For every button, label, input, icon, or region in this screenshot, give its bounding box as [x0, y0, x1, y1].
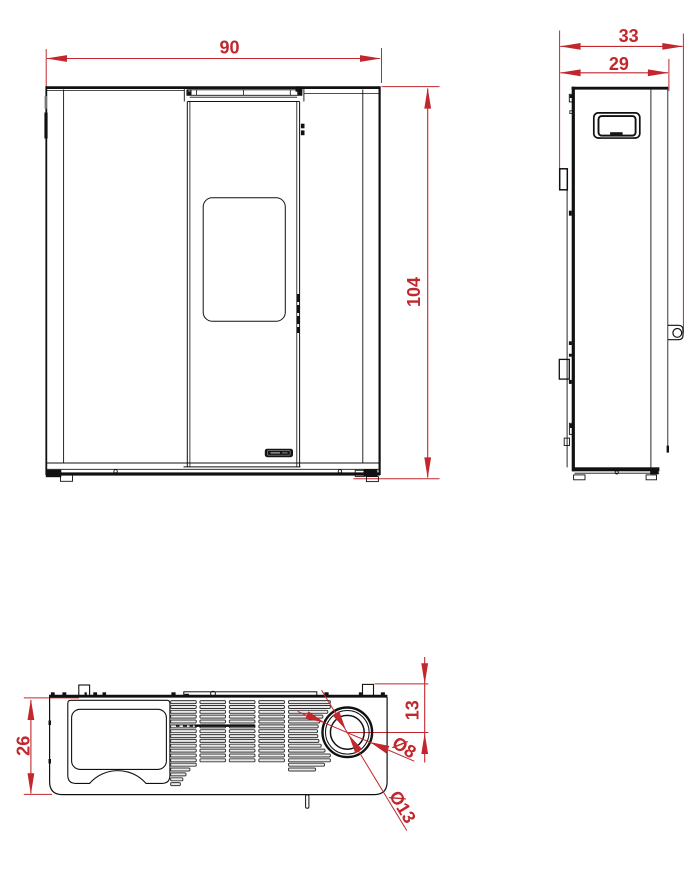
svg-text:104: 104 [404, 277, 424, 307]
svg-text:Ø8: Ø8 [389, 733, 420, 763]
svg-text:26: 26 [14, 736, 34, 756]
svg-text:13: 13 [403, 700, 423, 720]
svg-text:Ø13: Ø13 [385, 787, 420, 826]
svg-text:33: 33 [619, 26, 639, 46]
svg-text:90: 90 [219, 37, 239, 57]
svg-text:29: 29 [609, 54, 629, 74]
